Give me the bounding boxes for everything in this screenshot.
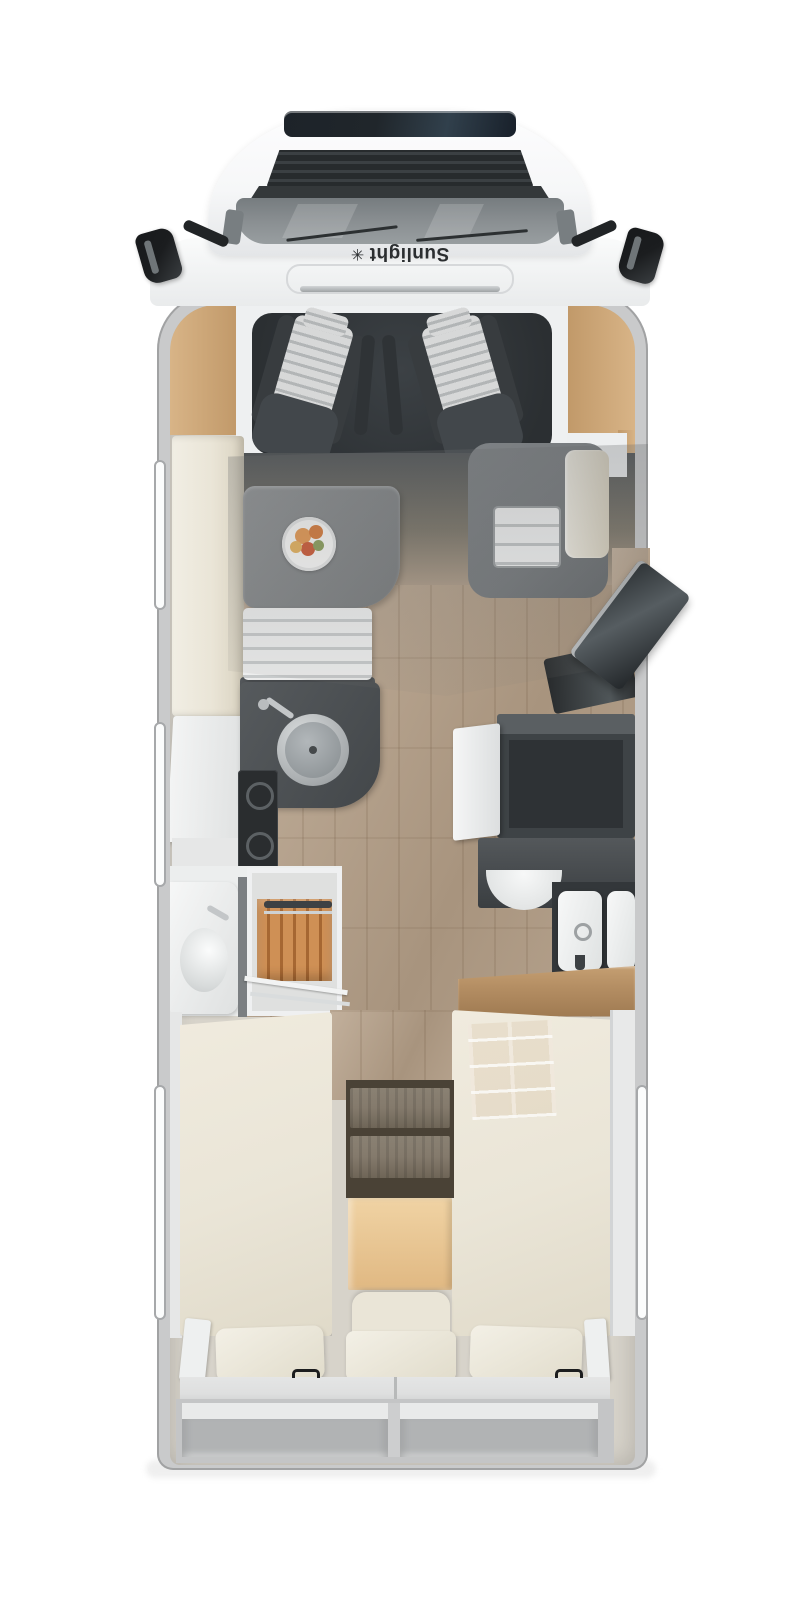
wood-step-tread [350,1136,450,1178]
gas-hob [238,770,278,874]
side-window-left-rear [154,1085,166,1320]
wood-step-platform [348,1198,452,1290]
wood-trim-right [565,305,635,435]
motorhome-floorplan: Sunlight ✳ [0,0,800,1600]
habitation-interior [170,305,635,1465]
shower-glass-door [250,992,350,1006]
single-bed-left [180,1012,332,1336]
hood-chrome-strip [300,286,500,292]
cabinet-door-open [453,723,500,841]
kitchen-sideboard [172,436,244,716]
bed-step-shelves [346,1080,454,1198]
grab-handle [292,1369,320,1378]
tall-cabinet-interior [509,740,623,828]
mirror-glass [626,236,642,271]
entry-side-wall [565,450,609,558]
fruit [313,540,324,551]
side-mirror-right [616,226,667,286]
under-bed-shelf [468,1020,557,1120]
fruit-plate [282,517,336,571]
shower-cubicle [247,868,342,1016]
toilet-cassette [558,891,602,971]
basin-bowl [180,928,228,992]
mirror-glass [143,240,159,275]
side-window-left-front [154,460,166,610]
kitchen-faucet-base [258,699,269,710]
fruit [309,525,323,539]
storage-lip [182,1403,388,1419]
hob-burner [246,782,274,810]
storage-divider [388,1403,400,1457]
brand-logo: Sunlight ✳ [330,240,470,266]
bed-partition-left [179,1318,211,1382]
pillow-center [346,1331,456,1381]
bathroom-divider-wall [238,877,247,1017]
rear-storage-left [182,1403,388,1457]
side-mirror-left [134,226,185,286]
grille-vents [266,150,534,188]
grab-handle [555,1369,583,1378]
towel-rail-chrome [264,911,332,914]
brand-logo-text: Sunlight [369,242,449,264]
single-bed-right [452,1010,612,1336]
dinette-bench [243,608,372,680]
sunroof-glass [284,111,516,137]
wardrobe-column [610,1010,635,1336]
bed-partition-right [584,1318,610,1381]
fruit [290,541,302,553]
side-window-left-mid [154,722,166,887]
hob-burner [246,832,274,860]
sink-drain [309,746,317,754]
wood-trim-left [170,305,240,435]
entry-steps [495,508,559,566]
towel-rail [264,901,332,908]
sun-logo-icon: ✳ [351,245,364,261]
rear-storage-right [400,1403,598,1457]
windshield [236,198,564,244]
cassette-button [574,923,592,941]
storage-lip [400,1403,598,1419]
wood-step-tread [350,1088,450,1128]
toilet-cassette [607,891,635,971]
cassette-hook [575,955,585,970]
basin-faucet [206,904,230,921]
side-window-right-rear [636,1085,648,1320]
bathroom-washbasin [170,882,238,1014]
